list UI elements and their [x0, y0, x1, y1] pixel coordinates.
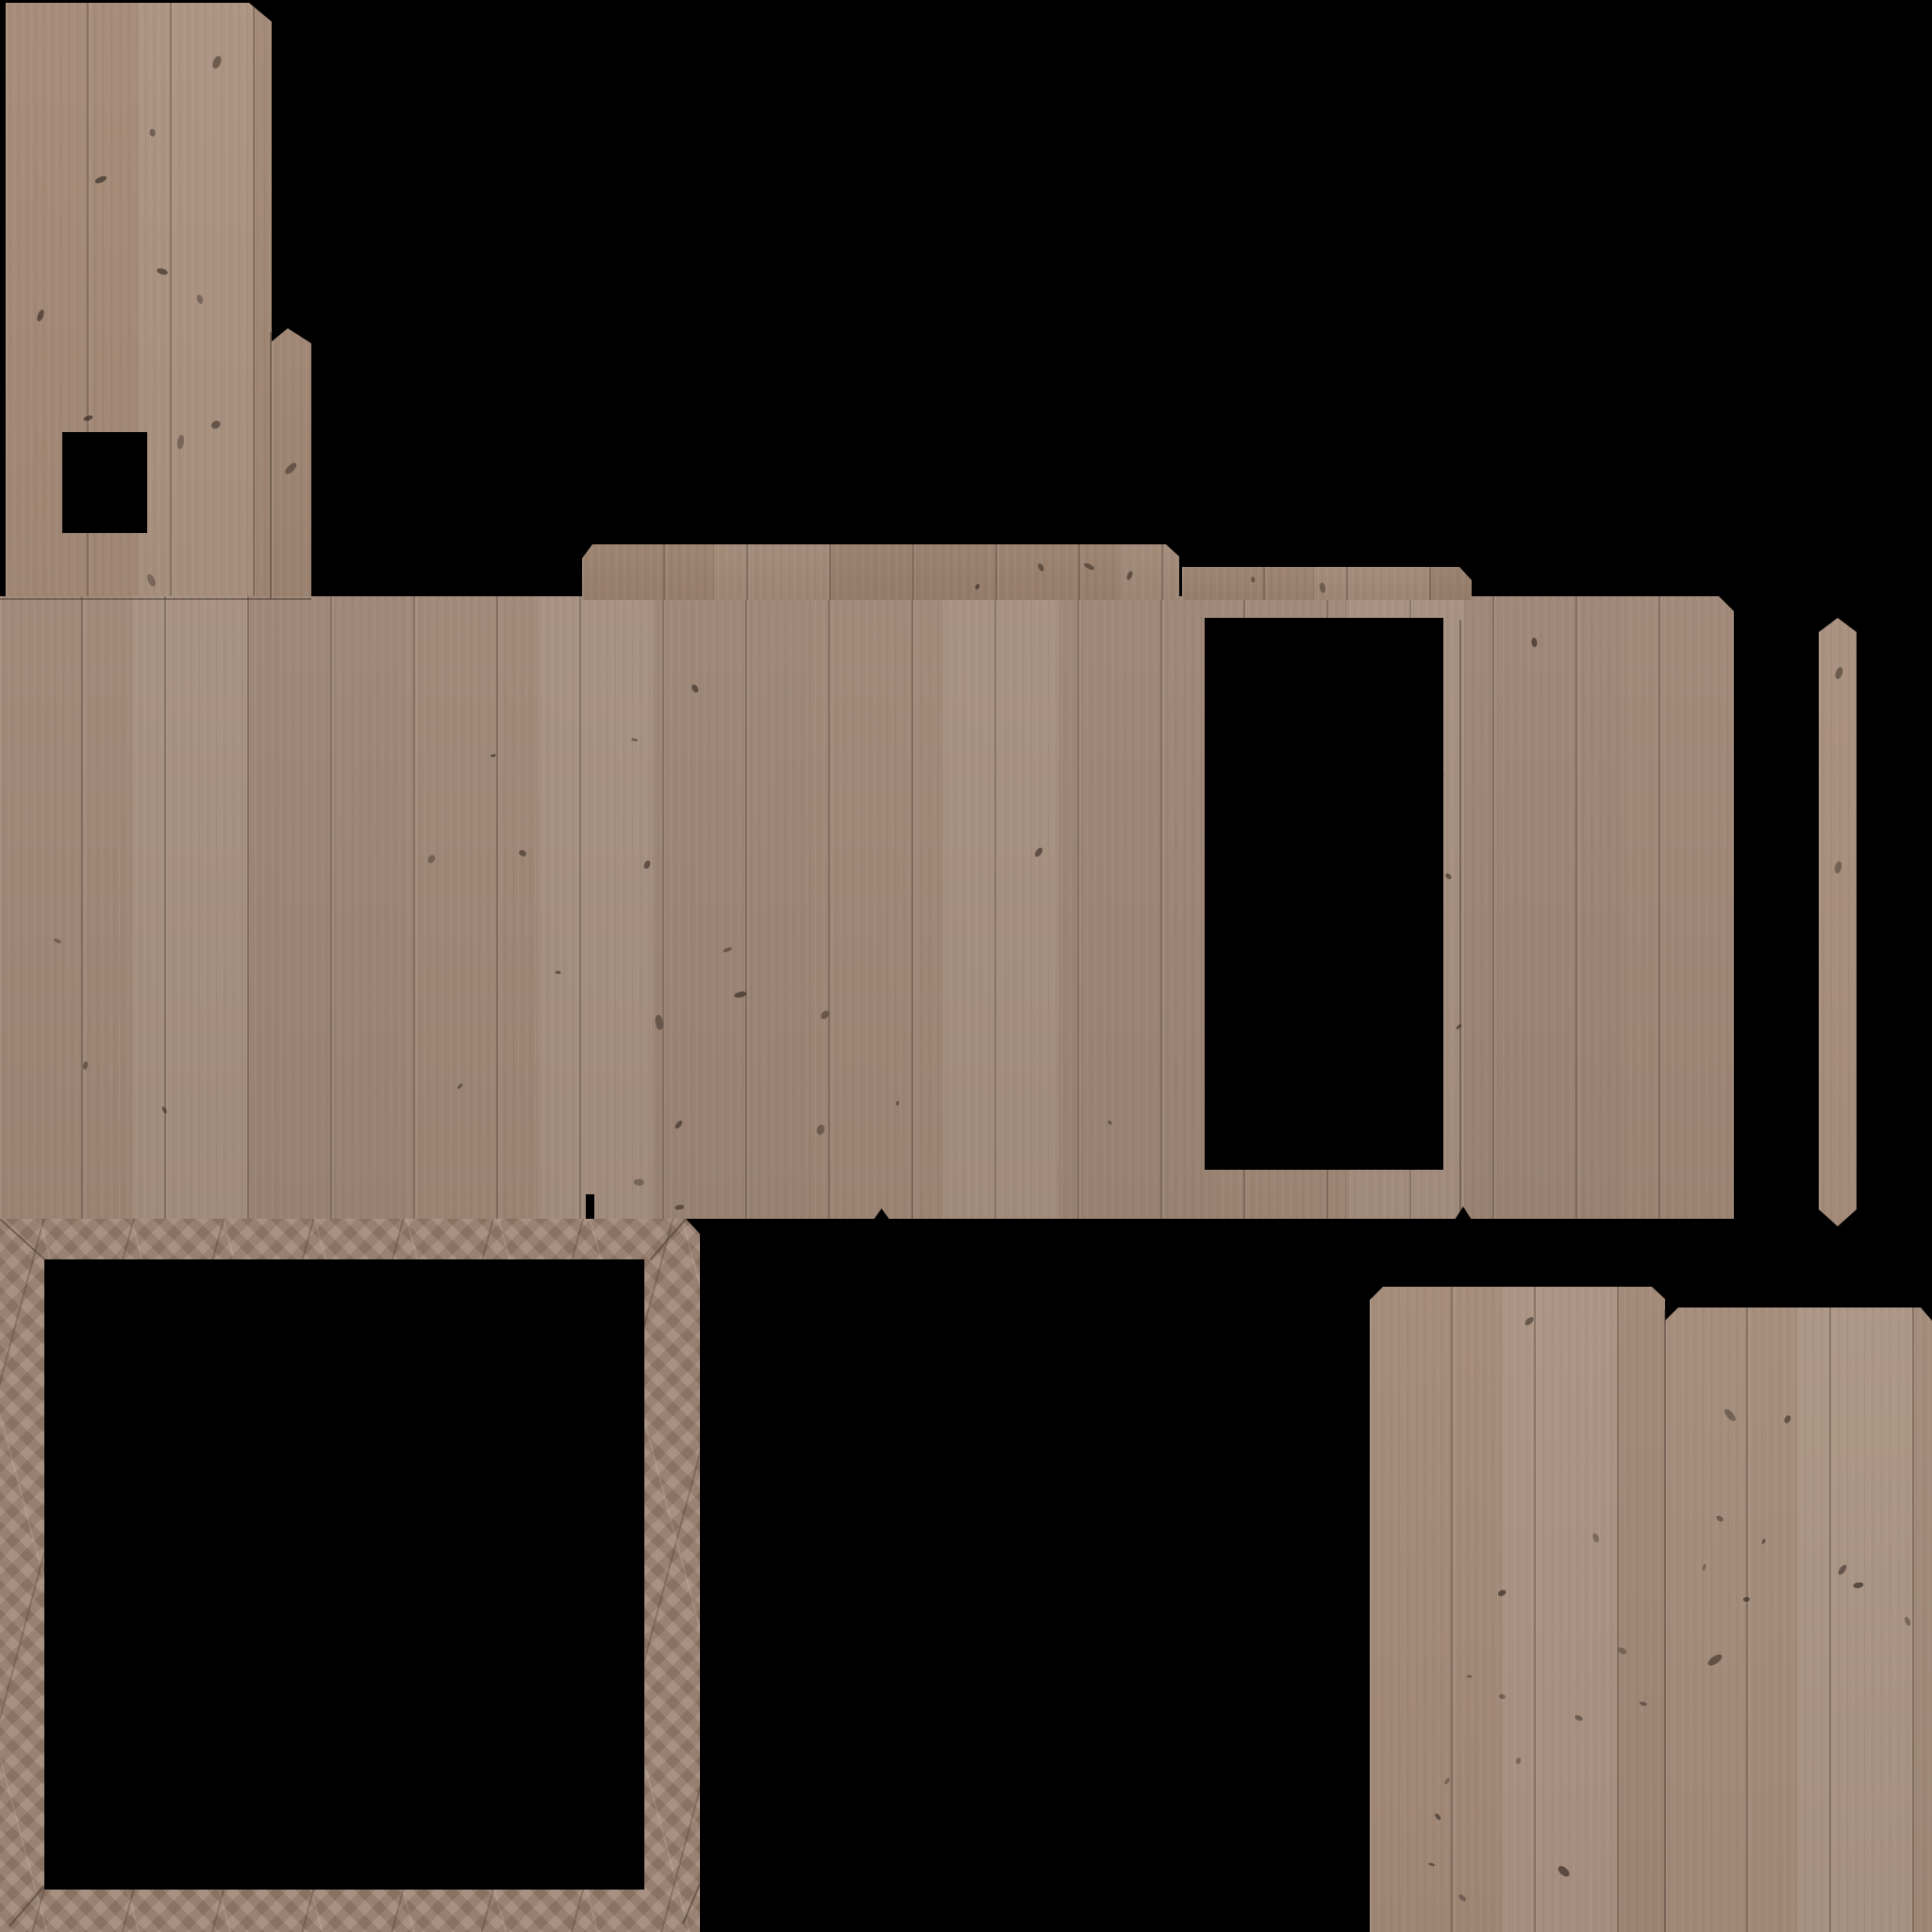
wood-knot	[1530, 638, 1538, 648]
wood-knot	[157, 267, 169, 275]
wood-knot	[1466, 1674, 1473, 1678]
wood-knot	[1033, 846, 1043, 858]
wood-knot	[490, 753, 496, 757]
wood-knot	[53, 938, 61, 944]
wood-knot	[655, 1014, 664, 1030]
wood-knot	[1783, 1414, 1791, 1424]
wood-knot	[1108, 1120, 1112, 1125]
wood-knot	[1761, 1538, 1767, 1544]
wood-knot	[1125, 571, 1134, 581]
band-tab-left	[582, 542, 1179, 600]
miter-joint	[0, 1219, 45, 1260]
miter-joint	[650, 1219, 686, 1260]
miter-joint	[8, 1886, 44, 1927]
cutout-hole	[1205, 618, 1443, 1170]
wood-knot	[675, 1205, 685, 1210]
wood-knot	[83, 415, 93, 423]
wood-knot	[634, 1178, 644, 1185]
wood-knot	[150, 128, 156, 136]
wood-knot	[1743, 1596, 1750, 1601]
seam-panel-slat	[270, 332, 272, 599]
seam-bottom-right-panels	[1664, 1309, 1666, 1932]
wood-knot	[1702, 1564, 1707, 1572]
wood-knot	[1457, 1892, 1467, 1902]
wood-knot	[196, 293, 205, 305]
wood-knot	[1640, 1701, 1648, 1707]
wood-knot	[1435, 1812, 1442, 1821]
wood-knot	[1497, 1590, 1507, 1598]
wood-knot	[723, 946, 733, 954]
slat-top-left	[272, 328, 311, 599]
wood-knot	[674, 1119, 683, 1129]
wood-knot	[1515, 1757, 1521, 1764]
wood-knot	[643, 859, 652, 870]
wood-knot	[518, 848, 527, 857]
wood-knot	[94, 175, 108, 184]
wood-knot	[1904, 1616, 1911, 1626]
wood-knot	[735, 991, 748, 999]
wood-knot	[691, 683, 700, 693]
wood-knot	[1574, 1714, 1583, 1722]
wood-knot	[457, 1083, 463, 1090]
wood-knot	[1319, 582, 1326, 592]
frame-bottom-left	[0, 1219, 700, 1932]
wood-knot	[1524, 1316, 1536, 1327]
wood-knot	[284, 460, 298, 475]
wood-knot	[974, 584, 980, 591]
wood-knot	[631, 738, 638, 742]
wood-knot	[556, 971, 561, 974]
wood-knot	[1591, 1532, 1600, 1542]
wood-knot	[819, 1008, 830, 1020]
cutout-hole	[62, 432, 147, 533]
wood-knot	[82, 1061, 89, 1071]
wood-knot	[1084, 562, 1096, 572]
wood-knot	[1498, 1693, 1506, 1699]
wood-knot	[211, 55, 223, 70]
wood-knot	[1834, 860, 1843, 874]
wood-knot	[1837, 1563, 1848, 1575]
wood-knot	[1834, 666, 1844, 679]
wood-knot	[1427, 1862, 1435, 1867]
wood-knot	[1617, 1646, 1627, 1656]
wood-knot	[1444, 872, 1453, 879]
wood-knot	[175, 435, 184, 450]
wood-knot	[1037, 562, 1044, 572]
wood-knot	[1557, 1864, 1571, 1878]
wood-knot	[1443, 1776, 1451, 1785]
seam-band-right-of-hole	[1459, 620, 1461, 1217]
seam-panel-band	[0, 598, 311, 600]
picket-slat	[1819, 618, 1857, 1226]
panel-bottom-right-b	[1665, 1307, 1932, 1932]
band-bottom-slot	[586, 1194, 594, 1219]
panel-bottom-right-a	[1370, 1287, 1665, 1932]
wood-knot	[1854, 1582, 1865, 1590]
wood-knot	[1715, 1515, 1724, 1523]
band-tab-right	[1182, 567, 1472, 600]
cutout-hole	[44, 1259, 644, 1890]
wood-knot	[816, 1124, 825, 1136]
wood-knot	[426, 854, 436, 864]
wood-knot	[1707, 1652, 1724, 1667]
miter-joint	[682, 1883, 700, 1924]
wood-knot	[210, 419, 222, 429]
wood-knot	[895, 1100, 899, 1106]
wood-knot	[1722, 1407, 1737, 1424]
wood-knot	[161, 1106, 168, 1114]
band-main	[0, 596, 1734, 1219]
wood-knot	[1251, 576, 1256, 583]
texture-atlas-canvas	[0, 0, 1932, 1932]
wood-knot	[146, 573, 158, 588]
wood-knot	[36, 309, 45, 323]
panel-top-left	[6, 3, 272, 599]
